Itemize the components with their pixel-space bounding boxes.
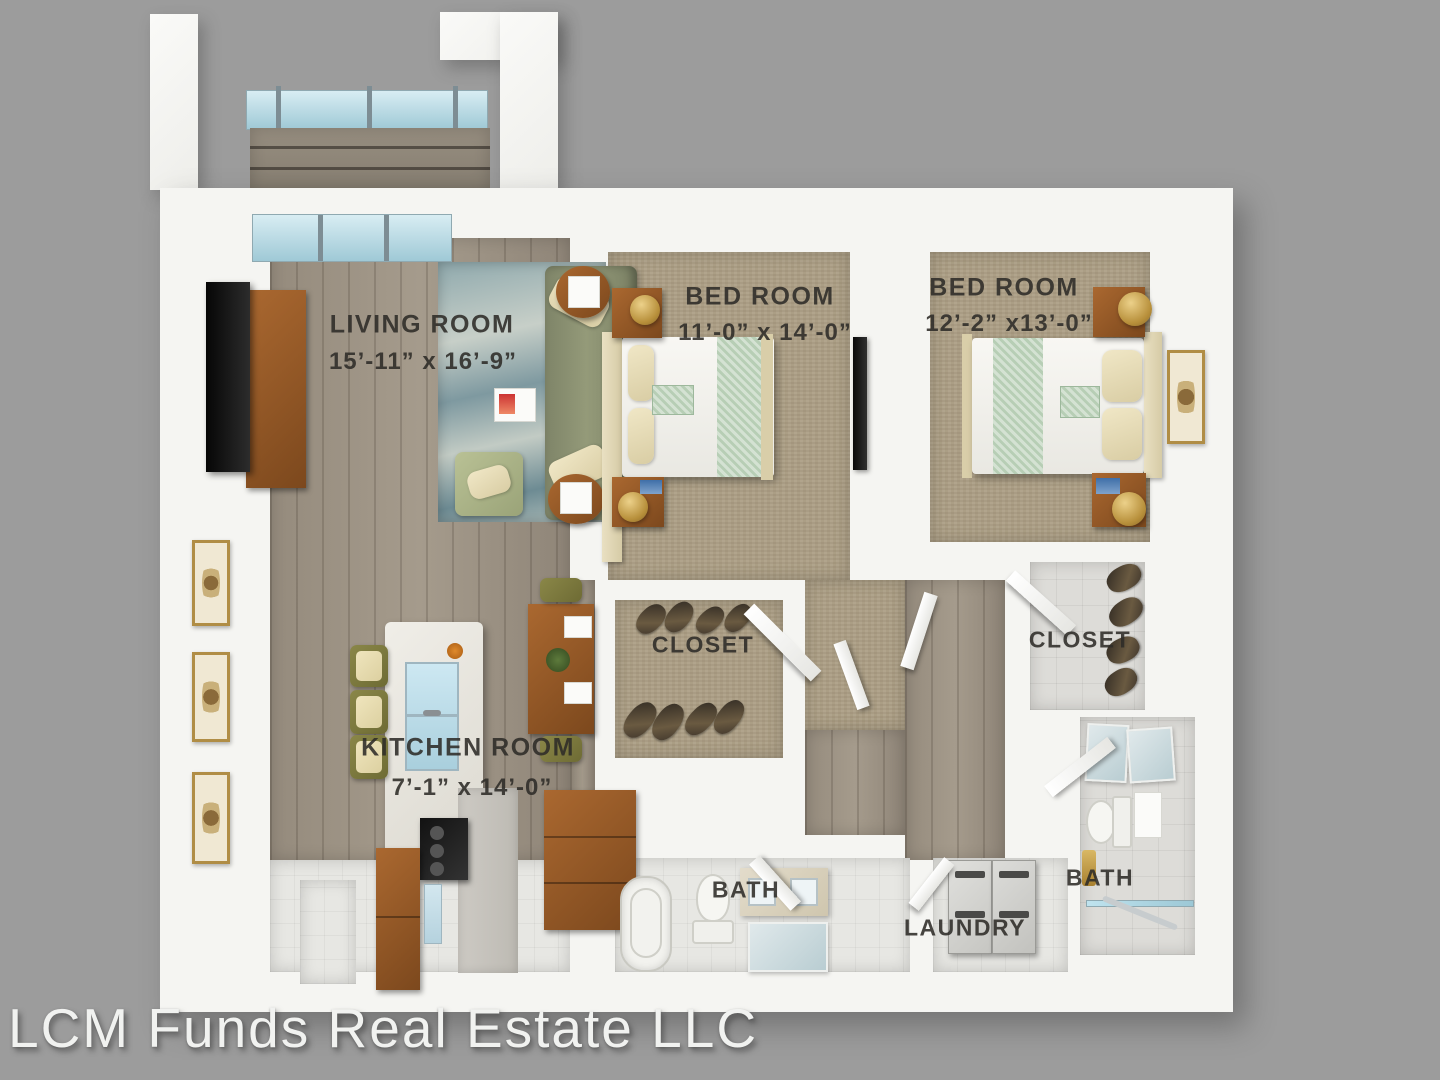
burner (430, 826, 444, 840)
balcony-left-wall (150, 14, 198, 190)
kitchen-cabinet (376, 848, 420, 990)
railing-post (367, 86, 372, 132)
stove (420, 818, 468, 880)
bedroom1-label: BED ROOM (685, 285, 835, 310)
media-console (246, 290, 306, 488)
cabinet-divider (544, 836, 636, 838)
fruit-bowl (447, 643, 463, 659)
tub-basin (630, 888, 662, 958)
balcony-deck (250, 128, 490, 190)
wall-art (192, 652, 230, 742)
magazine-cover (499, 394, 515, 414)
wall-art (192, 772, 230, 864)
bed1-lamp (618, 492, 648, 522)
bath1-label: BATH (712, 879, 780, 902)
cabinet-divider (376, 916, 420, 918)
bed1-lamp (630, 295, 660, 325)
door-mullion (318, 215, 323, 261)
bed2-footboard (962, 334, 972, 478)
living-room-dims: 15’-11” x 16’-9” (329, 350, 517, 374)
cabinet-divider (544, 882, 636, 884)
wall-art (192, 540, 230, 626)
bath2-mirror (1126, 726, 1176, 783)
balcony-sliding-door (252, 214, 452, 262)
railing-post (276, 86, 281, 132)
bed2-pillow (1102, 408, 1142, 460)
railing-post (453, 86, 458, 132)
toilet-tank (1112, 796, 1132, 848)
bathtub (620, 876, 672, 972)
bed2-lamp (1112, 492, 1146, 526)
bed2-pillow (1102, 350, 1142, 402)
toilet-tank (692, 920, 734, 944)
bath2-label: BATH (1066, 867, 1134, 890)
place-setting (564, 616, 592, 638)
bar-stool (350, 645, 388, 687)
kitchen-label: KITCHEN ROOM (361, 736, 575, 761)
bed1-book (640, 480, 662, 494)
dining-chair (540, 578, 582, 602)
closet1-label: CLOSET (652, 634, 754, 657)
balcony-right-wall-side (500, 12, 558, 190)
bedroom1-nook-floor (805, 580, 905, 730)
bedroom2-dims: 12’-2” x13’-0” (925, 312, 1092, 336)
place-setting (564, 682, 592, 704)
bedroom2-wall-art (1167, 350, 1205, 444)
magazine (494, 388, 536, 422)
bed1-runner (717, 337, 761, 477)
balcony-glass-railing (246, 90, 488, 130)
bath1-mirror (748, 922, 828, 972)
bedroom2-label: BED ROOM (929, 276, 1079, 301)
living-room-label: LIVING ROOM (330, 313, 515, 338)
table-plant (546, 648, 570, 672)
bed1-pillow (628, 408, 654, 464)
table-tray (568, 276, 600, 308)
bar-stool (350, 690, 388, 734)
laundry-label: LAUNDRY (904, 917, 1026, 940)
entry-closet-floor (300, 880, 356, 984)
hallway-floor-lower (805, 730, 905, 835)
bed2-book (1096, 478, 1120, 494)
tv-living (206, 282, 250, 472)
table-tray (560, 482, 592, 514)
bed2-headboard (1144, 332, 1162, 478)
tv-bedroom1 (853, 337, 867, 470)
burner (430, 862, 444, 876)
bed2-runner (993, 338, 1043, 474)
bedroom1-dims: 11’-0” x 14’-0” (678, 321, 852, 345)
bath2-cabinet (1134, 792, 1162, 838)
bed1-cushion (652, 385, 694, 415)
floor-plan-render: LIVING ROOM 15’-11” x 16’-9” BED ROOM 11… (0, 0, 1440, 1080)
watermark-text: LCM Funds Real Estate LLC (8, 996, 758, 1060)
fridge-panel (424, 884, 442, 944)
kitchen-dims: 7’-1” x 14’-0” (392, 776, 553, 800)
burner (430, 844, 444, 858)
bed1-footboard (761, 334, 773, 480)
closet2-label: CLOSET (1029, 629, 1131, 652)
door-mullion (384, 215, 389, 261)
bed1-pillow (628, 345, 654, 401)
sink-faucet-icon (423, 710, 441, 716)
dining-table (528, 604, 594, 734)
bed2-lamp (1118, 292, 1152, 326)
bed1-headboard (602, 332, 622, 562)
bed2-cushion (1060, 386, 1100, 418)
toilet-bath2 (1086, 792, 1130, 852)
kitchen-wall-stub (458, 788, 518, 973)
